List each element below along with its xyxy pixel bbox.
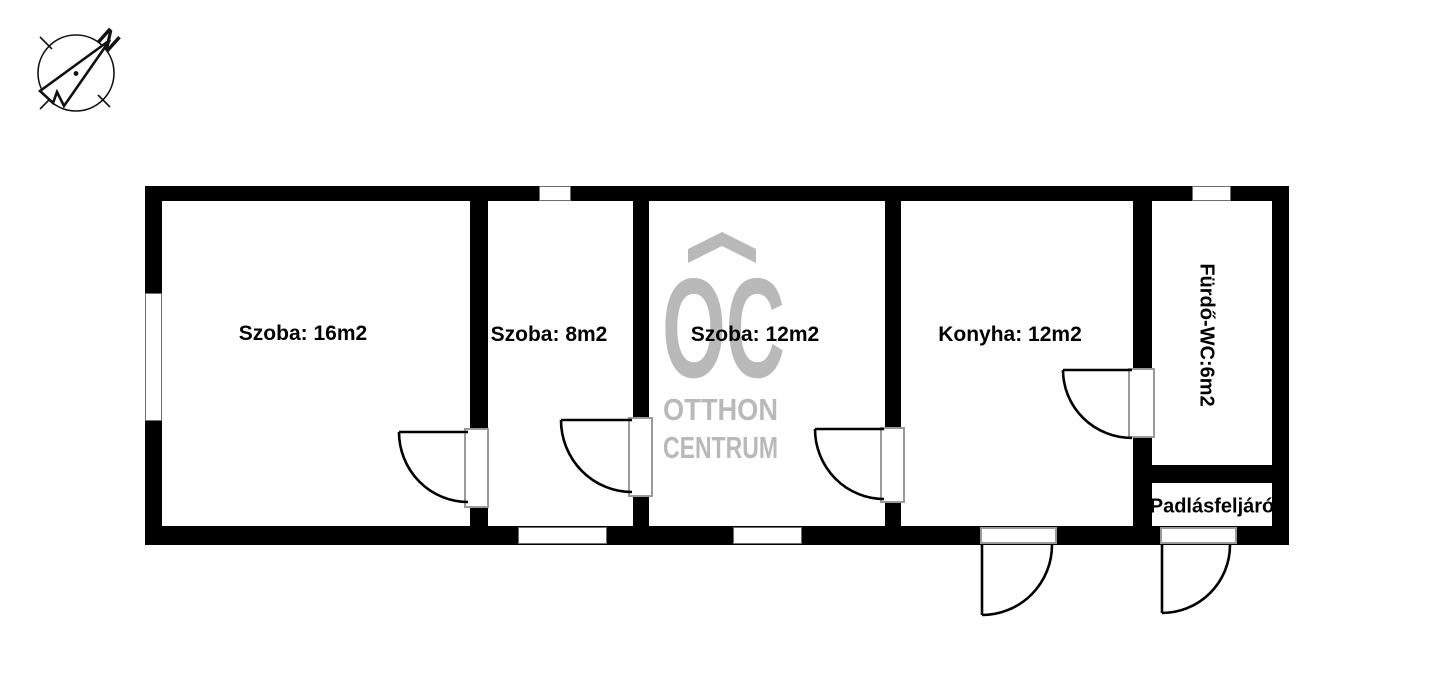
door-room2-swing-icon — [561, 420, 632, 492]
door-kitchen-exterior-swing-icon — [982, 545, 1052, 615]
door-room1-swing-icon — [399, 432, 468, 502]
door-room3-swing-icon — [815, 429, 884, 499]
door-attic-exterior-swing-icon — [1162, 545, 1230, 613]
room-label-padlasfeljaro: Padlásfeljáró — [1150, 496, 1275, 519]
door-kitchen-bathroom-swing-icon — [1063, 370, 1132, 438]
room-label-szoba-8: Szoba: 8m2 — [491, 323, 608, 347]
floor-plan-canvas: N OC OTTHON CENTRUM — [0, 0, 1444, 692]
room-label-szoba-12: Szoba: 12m2 — [691, 323, 819, 347]
room-label-furdo-wc: Fürdő-WC:6m2 — [1195, 263, 1218, 406]
room-label-konyha: Konyha: 12m2 — [938, 323, 1082, 347]
room-label-szoba-16: Szoba: 16m2 — [239, 322, 367, 346]
